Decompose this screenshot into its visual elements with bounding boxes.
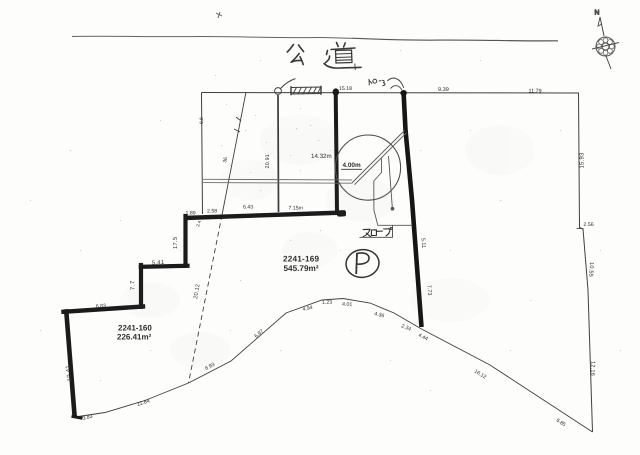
- svg-text:15.93: 15.93: [579, 152, 586, 168]
- svg-text:2.34: 2.34: [400, 323, 412, 332]
- svg-text:4.94: 4.94: [302, 305, 313, 313]
- svg-text:11.84: 11.84: [136, 398, 150, 408]
- svg-text:2.56: 2.56: [584, 222, 594, 228]
- svg-text:6.43: 6.43: [243, 205, 253, 211]
- svg-text:36: 36: [222, 156, 229, 163]
- svg-text:N: N: [595, 10, 600, 17]
- svg-text:4.01: 4.01: [342, 302, 353, 309]
- svg-text:5.41: 5.41: [152, 260, 165, 267]
- svg-text:4.36: 4.36: [374, 311, 385, 319]
- svg-text:2.58: 2.58: [207, 209, 217, 215]
- svg-text:1.89: 1.89: [186, 211, 196, 217]
- svg-text:2.4: 2.4: [195, 219, 202, 227]
- svg-text:226.41m²: 226.41m²: [117, 333, 152, 342]
- svg-text:7.15m: 7.15m: [289, 205, 303, 211]
- svg-text:6.97: 6.97: [253, 328, 265, 339]
- svg-text:17.5: 17.5: [173, 236, 179, 249]
- svg-text:10.55: 10.55: [587, 262, 594, 277]
- svg-text:9.39: 9.39: [438, 87, 449, 93]
- svg-text:1.23: 1.23: [322, 300, 332, 306]
- svg-text:20.12: 20.12: [193, 284, 202, 300]
- svg-text:6.85: 6.85: [555, 418, 567, 429]
- svg-text:4.00m: 4.00m: [343, 162, 361, 169]
- svg-text:2241-160: 2241-160: [118, 324, 152, 333]
- svg-text:3.83: 3.83: [82, 414, 93, 422]
- svg-text:6.83: 6.83: [96, 303, 107, 310]
- svg-text:12.16: 12.16: [589, 361, 596, 376]
- svg-text:9.8: 9.8: [199, 117, 205, 124]
- svg-text:4.44: 4.44: [417, 332, 429, 342]
- svg-text:11.79: 11.79: [529, 89, 542, 95]
- svg-text:15.18: 15.18: [339, 86, 352, 92]
- svg-text:16.12: 16.12: [473, 369, 487, 381]
- svg-text:5.11: 5.11: [420, 238, 427, 248]
